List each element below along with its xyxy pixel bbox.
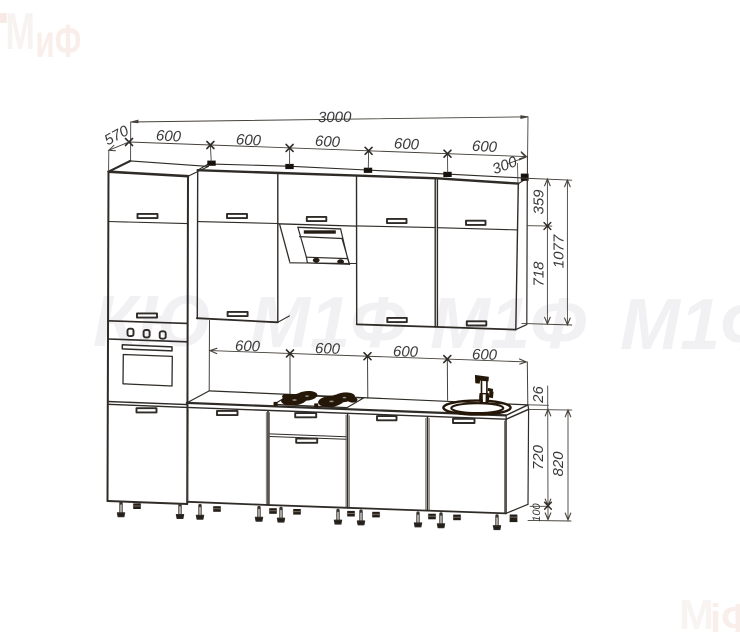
svg-text:718: 718 bbox=[531, 261, 548, 287]
svg-text:600: 600 bbox=[472, 346, 498, 364]
svg-text:720: 720 bbox=[530, 444, 547, 470]
svg-text:М1Ф: М1Ф bbox=[430, 284, 586, 364]
svg-text:1077: 1077 bbox=[551, 234, 568, 268]
svg-text:іФ: іФ bbox=[710, 597, 740, 636]
svg-text:М: М bbox=[679, 591, 714, 636]
svg-text:100: 100 bbox=[531, 502, 543, 521]
svg-text:М1Ф: М1Ф bbox=[620, 285, 740, 365]
svg-text:820: 820 bbox=[550, 451, 567, 477]
svg-text:570: 570 bbox=[102, 122, 133, 149]
svg-text:600: 600 bbox=[235, 338, 261, 356]
svg-text:26: 26 bbox=[530, 386, 547, 404]
svg-text:3000: 3000 bbox=[318, 109, 352, 126]
svg-text:600: 600 bbox=[315, 340, 341, 358]
svg-text:600: 600 bbox=[236, 131, 262, 149]
svg-text:иФ: иФ bbox=[35, 16, 81, 67]
svg-text:600: 600 bbox=[315, 133, 341, 151]
svg-text:359: 359 bbox=[531, 189, 548, 215]
svg-text:600: 600 bbox=[156, 127, 182, 145]
svg-text:600: 600 bbox=[393, 343, 419, 361]
svg-text:300: 300 bbox=[490, 153, 520, 178]
svg-text:600: 600 bbox=[472, 138, 498, 156]
svg-text:600: 600 bbox=[394, 135, 420, 153]
svg-text:М: М bbox=[5, 3, 34, 60]
